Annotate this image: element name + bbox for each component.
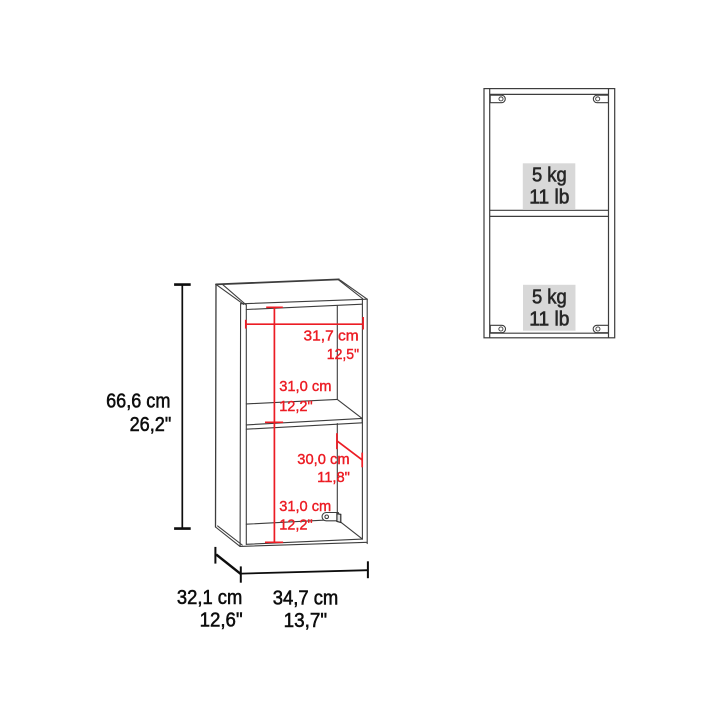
svg-text:11 lb: 11 lb [529, 187, 569, 209]
svg-text:31,0 cm: 31,0 cm [279, 379, 331, 395]
svg-text:13,7": 13,7" [284, 610, 328, 632]
svg-text:31,7 cm: 31,7 cm [304, 328, 359, 344]
svg-text:12,2": 12,2" [279, 518, 313, 534]
svg-text:12,5": 12,5" [327, 347, 359, 363]
svg-text:11,8": 11,8" [317, 470, 350, 486]
svg-text:12,2": 12,2" [279, 399, 313, 415]
svg-text:26,2": 26,2" [130, 414, 172, 436]
svg-text:34,7 cm: 34,7 cm [273, 587, 339, 609]
svg-text:12,6": 12,6" [200, 610, 243, 632]
svg-text:32,1 cm: 32,1 cm [177, 587, 242, 609]
svg-text:11 lb: 11 lb [529, 308, 569, 330]
svg-text:5 kg: 5 kg [532, 286, 567, 308]
svg-text:31,0 cm: 31,0 cm [279, 499, 331, 515]
svg-text:66,6 cm: 66,6 cm [106, 391, 170, 413]
svg-text:5 kg: 5 kg [532, 165, 567, 187]
svg-text:30,0 cm: 30,0 cm [297, 452, 349, 468]
